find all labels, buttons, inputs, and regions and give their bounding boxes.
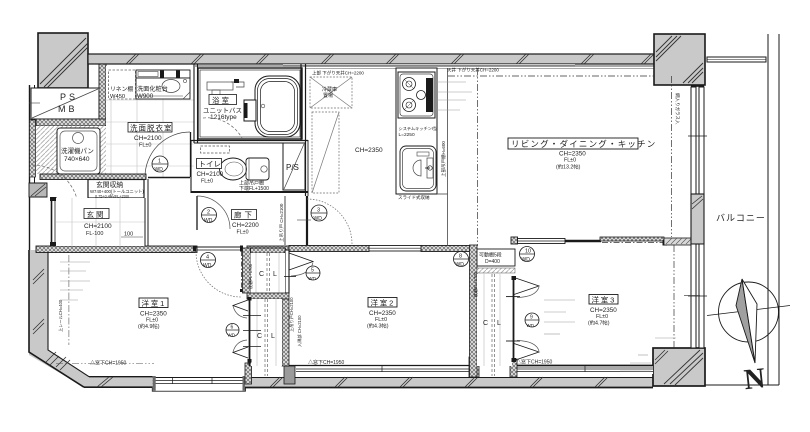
svg-text:枕棚FL+1700: 枕棚FL+1700 [472, 271, 479, 297]
svg-text:WD: WD [155, 167, 164, 173]
svg-text:1216type: 1216type [210, 114, 237, 121]
svg-text:洋室3: 洋室3 [592, 295, 617, 305]
svg-text:CH=2350: CH=2350 [559, 151, 586, 158]
svg-text:100: 100 [124, 232, 133, 238]
svg-text:洋室1: 洋室1 [142, 298, 167, 308]
svg-text:玄関: 玄関 [87, 209, 106, 219]
svg-text:洗面脱衣室: 洗面脱衣室 [130, 123, 173, 133]
svg-text:CH=2350: CH=2350 [369, 310, 396, 317]
svg-text:(約13.2帖): (約13.2帖) [556, 163, 581, 171]
svg-text:浴室: 浴室 [212, 95, 231, 105]
svg-text:△窓下CH=1950: △窓下CH=1950 [308, 359, 344, 366]
svg-text:枕棚FL+1700: 枕棚FL+1700 [247, 263, 254, 289]
svg-text:上吊り戸 CH=2100: 上吊り戸 CH=2100 [278, 203, 285, 242]
svg-text:リネン棚: リネン棚 [110, 85, 133, 93]
svg-text:スライド式収納: スライド式収納 [398, 194, 430, 201]
svg-text:W450: W450 [110, 94, 125, 100]
svg-text:WD: WD [228, 333, 236, 338]
svg-text:WD: WD [203, 263, 212, 269]
svg-text:FL±0: FL±0 [596, 314, 608, 320]
svg-text:CH=2350: CH=2350 [140, 311, 167, 318]
svg-text:FL±0: FL±0 [146, 318, 158, 324]
svg-text:△窓下CH=1950: △窓下CH=1950 [90, 360, 126, 367]
svg-text:4: 4 [206, 255, 209, 261]
svg-text:9: 9 [530, 315, 533, 321]
svg-text:10: 10 [525, 249, 531, 255]
svg-text:システムキッチンI型: システムキッチンI型 [399, 125, 438, 132]
svg-text:洗面化粧台: 洗面化粧台 [137, 85, 168, 93]
svg-text:バルコニー: バルコニー [716, 213, 766, 223]
svg-text:トイレ: トイレ [199, 160, 222, 169]
svg-text:WD: WD [456, 262, 465, 268]
svg-text:MB: MB [58, 104, 78, 114]
svg-text:WD: WD [522, 257, 531, 263]
svg-text:L: L [497, 320, 501, 327]
svg-text:CH=2350: CH=2350 [590, 307, 617, 314]
svg-text:PS: PS [60, 92, 78, 102]
svg-text:上部吊戸棚H=600: 上部吊戸棚H=600 [440, 141, 447, 177]
svg-text:△窓下CH=1950: △窓下CH=1950 [516, 359, 552, 366]
svg-text:1: 1 [158, 159, 161, 165]
svg-text:(約4.3帖): (約4.3帖) [367, 322, 389, 330]
svg-text:下端FL+1500: 下端FL+1500 [239, 185, 269, 192]
svg-text:(約4.9帖): (約4.9帖) [138, 322, 160, 330]
svg-text:CH=2100: CH=2100 [197, 171, 224, 178]
svg-text:P/S: P/S [286, 163, 299, 172]
svg-text:上部 下がり天井CH=2200: 上部 下がり天井CH=2200 [312, 70, 364, 77]
svg-text:入隅部 CH=2100: 入隅部 CH=2100 [296, 315, 303, 347]
svg-text:0.75+0.4帖(FL+200): 0.75+0.4帖(FL+200) [95, 194, 130, 199]
svg-text:WD: WD [308, 276, 317, 282]
svg-text:FL±0: FL±0 [201, 179, 213, 185]
svg-text:CH=2350: CH=2350 [355, 147, 383, 154]
svg-text:(約4.7帖): (約4.7帖) [588, 319, 610, 327]
svg-text:玄関収納: 玄関収納 [96, 180, 123, 189]
svg-text:洋室2: 洋室2 [371, 298, 396, 308]
svg-text:CH=2200: CH=2200 [232, 222, 259, 229]
svg-text:8: 8 [459, 254, 462, 260]
svg-text:CH=2100: CH=2100 [134, 135, 162, 142]
svg-text:冷蔵庫: 冷蔵庫 [322, 86, 337, 93]
svg-text:天井 下がり天井CH=2200: 天井 下がり天井CH=2200 [447, 67, 499, 74]
svg-text:5: 5 [311, 268, 314, 274]
svg-text:L=2250: L=2250 [399, 132, 415, 138]
svg-text:洗濯機パン: 洗濯機パン [61, 146, 94, 155]
svg-text:N: N [742, 362, 766, 396]
svg-text:WD: WD [314, 216, 323, 222]
svg-text:置場: 置場 [323, 92, 333, 99]
svg-text:L: L [271, 333, 275, 340]
svg-text:FL-100: FL-100 [86, 231, 103, 237]
svg-text:6: 6 [231, 325, 234, 331]
svg-text:FL±0: FL±0 [564, 158, 576, 164]
svg-text:リビング・ダイニング・キッチン: リビング・ダイニング・キッチン [511, 139, 657, 149]
svg-text:C: C [257, 333, 262, 340]
svg-text:WD: WD [527, 323, 535, 328]
svg-text:FL±0: FL±0 [237, 230, 249, 236]
svg-text:740×640: 740×640 [64, 156, 90, 163]
svg-text:上吊り戸CH=2100: 上吊り戸CH=2100 [288, 297, 295, 332]
svg-text:CH=2100: CH=2100 [84, 223, 112, 230]
svg-text:C: C [483, 320, 488, 327]
svg-text:W740+400(トールユニット): W740+400(トールユニット) [90, 189, 144, 194]
svg-text:W900: W900 [137, 93, 154, 100]
svg-text:可動棚5段: 可動棚5段 [479, 252, 502, 259]
svg-text:網入りガラス入: 網入りガラス入 [674, 93, 681, 125]
svg-text:L: L [273, 271, 277, 278]
svg-text:D=400: D=400 [485, 259, 500, 265]
svg-text:WD: WD [204, 218, 213, 224]
svg-text:上レールCH=400: 上レールCH=400 [57, 299, 63, 332]
svg-text:3: 3 [317, 208, 320, 214]
svg-text:2: 2 [207, 210, 210, 216]
svg-text:C: C [259, 271, 264, 278]
svg-text:FL±0: FL±0 [139, 143, 152, 149]
svg-text:廊下: 廊下 [234, 210, 255, 220]
svg-text:FL±0: FL±0 [375, 317, 387, 323]
